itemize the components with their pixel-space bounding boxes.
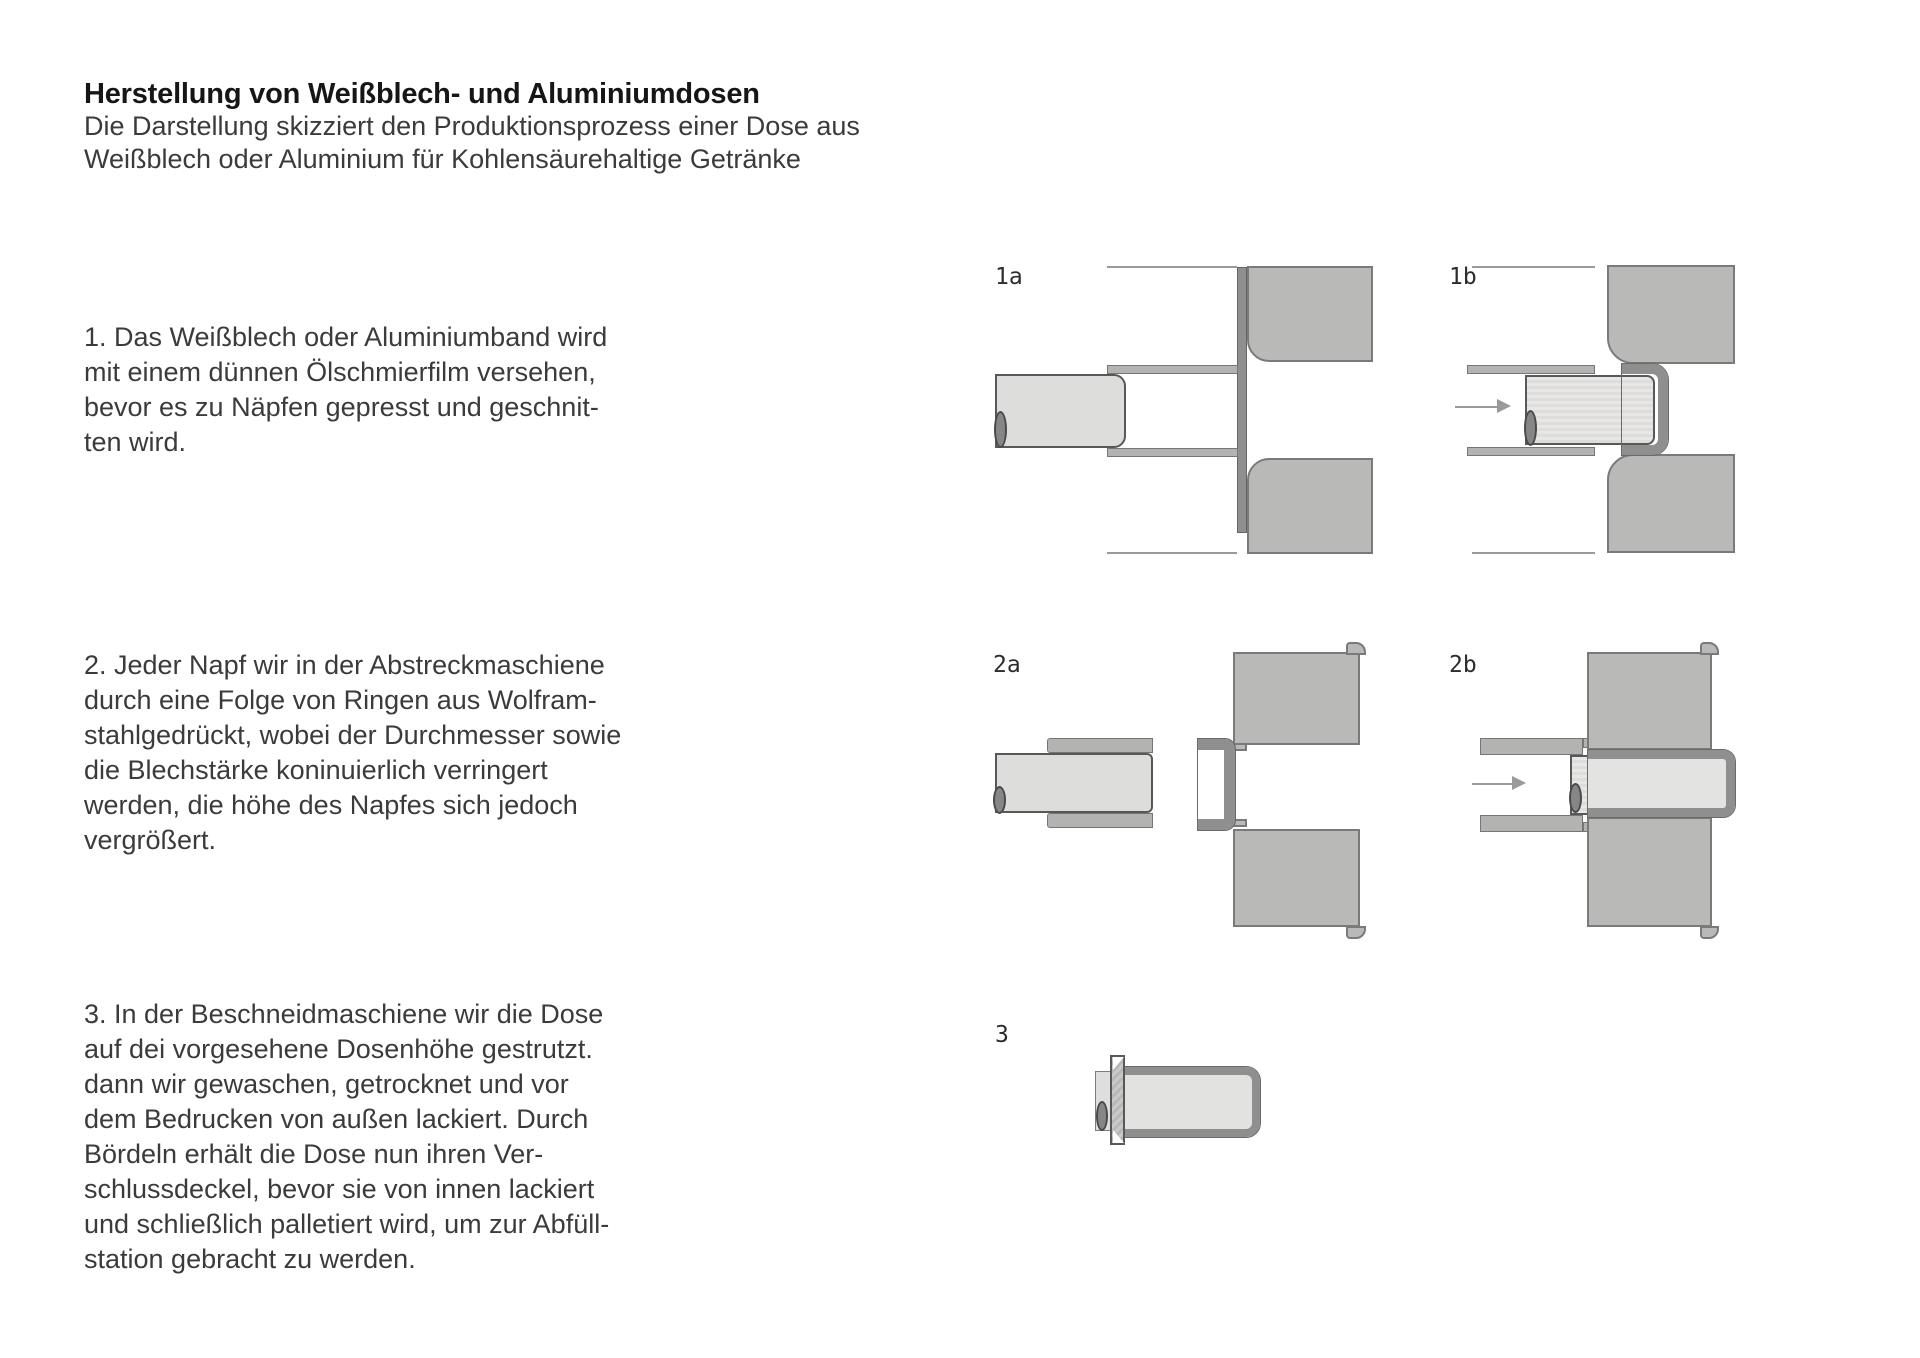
- die-block-top: [1607, 265, 1735, 364]
- punch: [995, 753, 1153, 813]
- step-1-paragraph: 1. Das Weißblech oder Aluminiumband wird…: [84, 320, 744, 460]
- punch-break-mark: [993, 786, 1006, 814]
- guide-plate-bottom: [1107, 448, 1238, 457]
- die-flange-bottom: [1700, 926, 1719, 939]
- feed-arrow: [1472, 783, 1514, 785]
- ironing-die-bottom: [1233, 829, 1360, 927]
- die-mouth-step-top: [1233, 743, 1247, 751]
- ironing-die-bottom: [1587, 817, 1712, 927]
- ironed-can: [1588, 750, 1735, 817]
- page-subtitle: Die Darstellung skizziert den Produktion…: [84, 110, 884, 176]
- feed-arrow: [1455, 406, 1499, 408]
- page-title: Herstellung von Weißblech- und Aluminium…: [84, 78, 784, 111]
- guide-plate-top: [1480, 738, 1583, 755]
- guide-plate-bottom: [1467, 447, 1595, 456]
- figure-2b-label: 2b: [1449, 652, 1477, 678]
- trim-cut-bottom: [1113, 1130, 1124, 1143]
- metal-sheet-strip: [1237, 267, 1247, 533]
- guide-plate-top: [1047, 738, 1153, 753]
- drawn-cup: [1198, 739, 1235, 830]
- frame-line-bottom: [1107, 552, 1237, 554]
- ironing-die-top: [1233, 652, 1360, 745]
- punch-break-mark: [1524, 410, 1537, 446]
- guide-plate-top: [1107, 365, 1238, 374]
- die-block-bottom: [1607, 454, 1735, 553]
- trimmed-can: [1113, 1067, 1260, 1137]
- figure-3-label: 3: [995, 1022, 1009, 1048]
- die-block-top: [1247, 266, 1373, 362]
- die-block-bottom: [1247, 458, 1373, 554]
- trim-cut-top: [1113, 1057, 1124, 1070]
- die-flange-top: [1700, 642, 1719, 655]
- guide-plate-bottom: [1480, 815, 1583, 832]
- frame-line-top: [1107, 266, 1237, 268]
- frame-line-top: [1472, 266, 1595, 268]
- drawn-cup: [1622, 364, 1668, 455]
- die-mouth-step-bottom: [1233, 819, 1247, 827]
- frame-line-bottom: [1472, 552, 1595, 554]
- punch-break-mark: [1569, 783, 1582, 813]
- die-flange-bottom: [1346, 926, 1366, 939]
- figure-1a-label: 1a: [995, 264, 1023, 290]
- punch-break-mark: [1096, 1101, 1108, 1131]
- feed-arrow-head-icon: [1497, 399, 1511, 413]
- figure-2a-label: 2a: [993, 652, 1021, 678]
- ironing-die-top: [1587, 652, 1712, 750]
- step-2-paragraph: 2. Jeder Napf wir in der Abstreckmaschie…: [84, 648, 744, 858]
- page: { "doc": { "title": "Herstellung von Wei…: [0, 0, 1920, 1358]
- punch: [995, 374, 1126, 448]
- step-3-paragraph: 3. In der Beschneidmaschiene wir die Dos…: [84, 997, 744, 1277]
- guide-plate-top: [1467, 365, 1595, 374]
- punch-break-mark: [994, 411, 1007, 448]
- guide-plate-bottom: [1047, 813, 1153, 828]
- die-flange-top: [1346, 642, 1366, 655]
- feed-arrow-head-icon: [1512, 776, 1526, 790]
